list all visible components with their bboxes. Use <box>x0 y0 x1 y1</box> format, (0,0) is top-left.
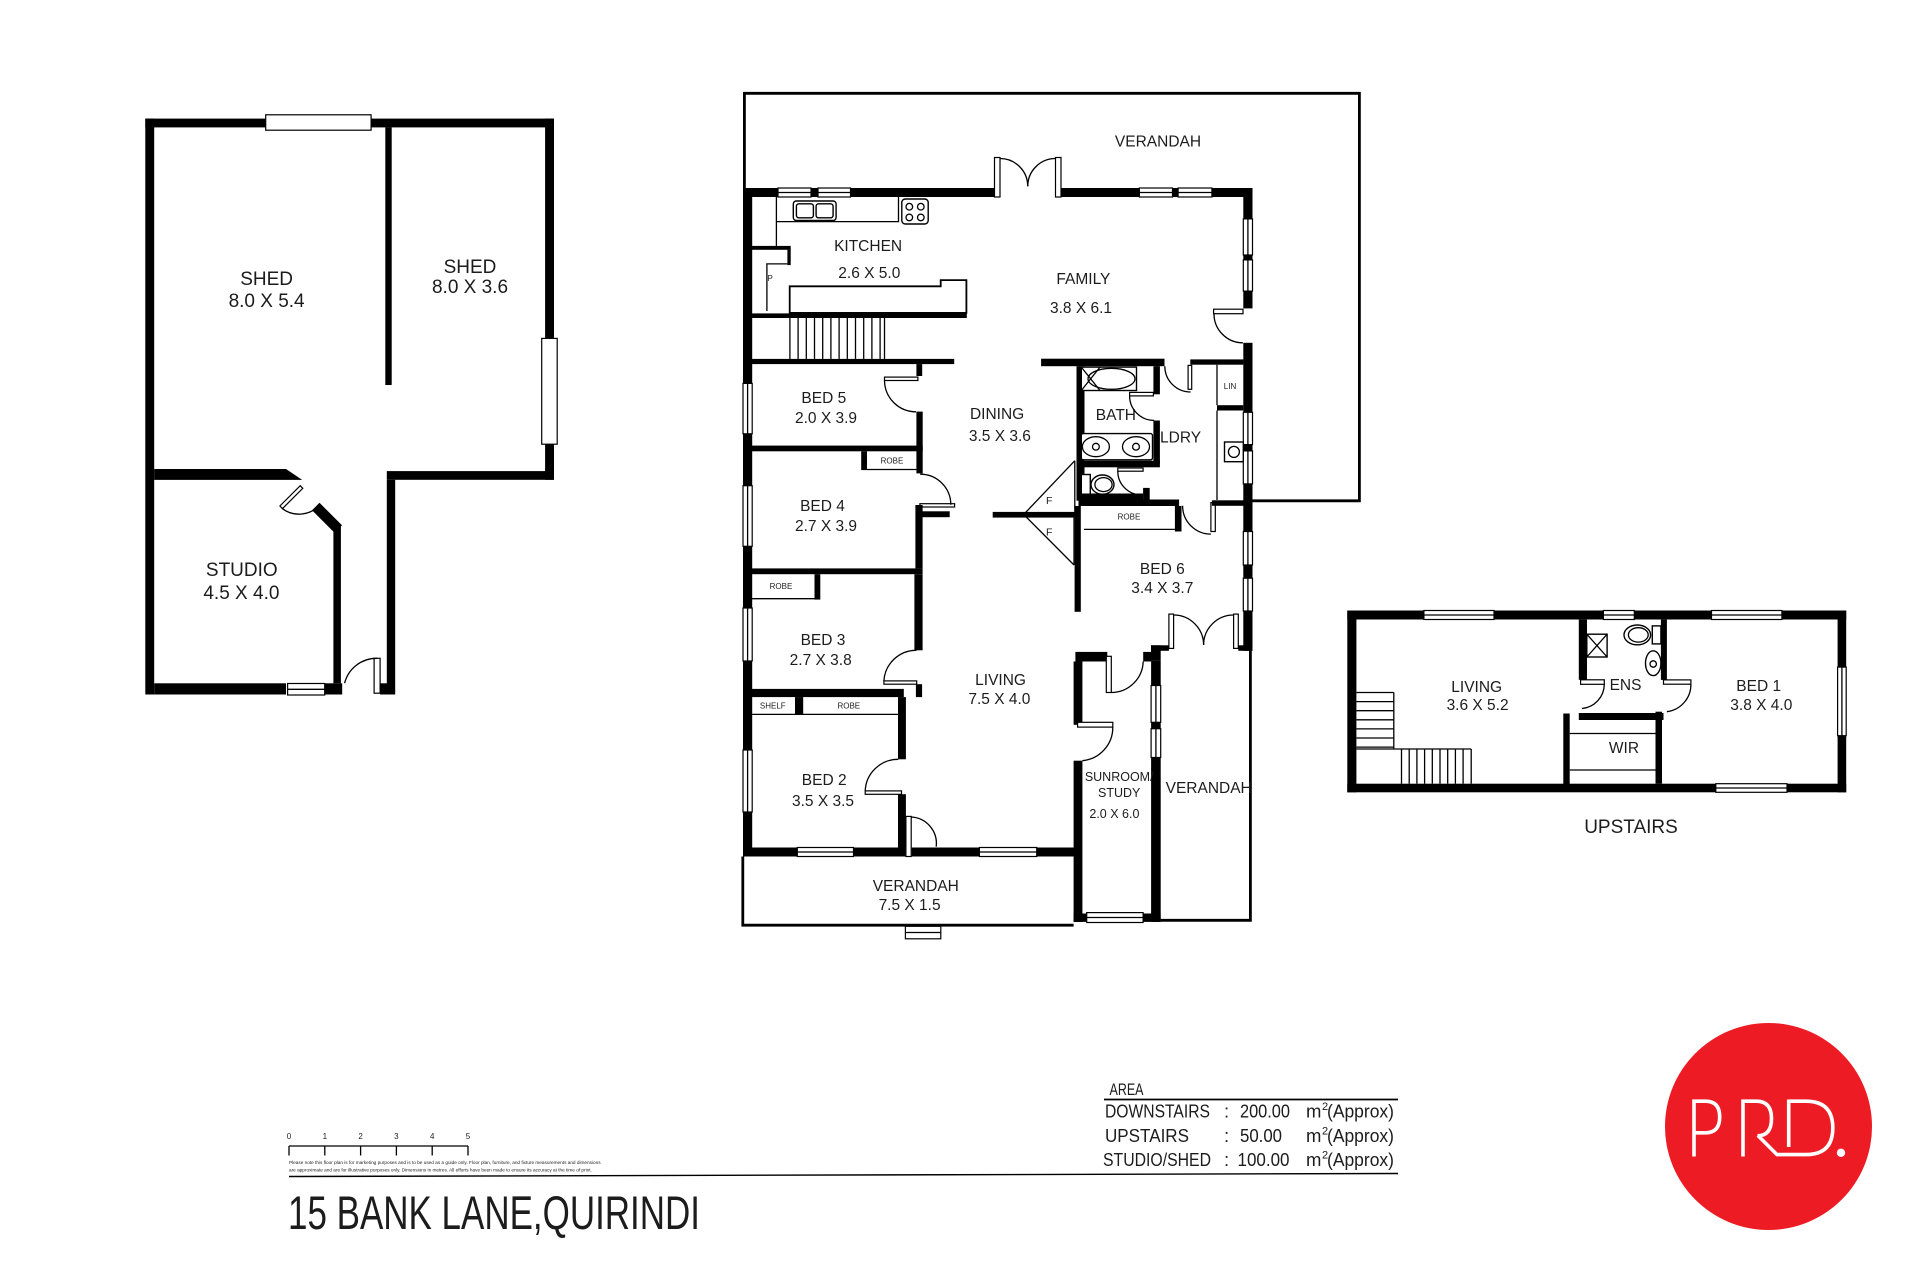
svg-text:4.5 X 4.0: 4.5 X 4.0 <box>203 583 279 604</box>
svg-text:LIVING: LIVING <box>1451 679 1502 696</box>
svg-text:BED 6: BED 6 <box>1140 561 1185 578</box>
svg-text:0: 0 <box>287 1132 292 1141</box>
svg-text:KITCHEN: KITCHEN <box>834 238 902 255</box>
svg-text:3.5 X 3.5: 3.5 X 3.5 <box>792 793 854 810</box>
svg-text:F: F <box>1046 495 1052 507</box>
svg-text:BED 5: BED 5 <box>801 390 846 407</box>
svg-text:BED 3: BED 3 <box>801 632 846 649</box>
svg-text:m: m <box>1306 1101 1321 1122</box>
svg-text:3.8 X 4.0: 3.8 X 4.0 <box>1730 697 1792 714</box>
svg-text:m: m <box>1306 1149 1321 1170</box>
svg-text:100.00: 100.00 <box>1238 1149 1290 1170</box>
svg-text:7.5 X 4.0: 7.5 X 4.0 <box>968 691 1030 708</box>
svg-text:LIVING: LIVING <box>975 672 1026 689</box>
svg-text:are approximate and are for il: are approximate and are for illustrative… <box>289 1168 592 1173</box>
svg-text::: : <box>1224 1149 1229 1170</box>
svg-text:50.00: 50.00 <box>1240 1125 1282 1146</box>
svg-text:2.7 X 3.8: 2.7 X 3.8 <box>790 652 852 669</box>
svg-text:5: 5 <box>466 1132 471 1141</box>
svg-text:SHELF: SHELF <box>760 702 786 711</box>
svg-text:8.0 X 5.4: 8.0 X 5.4 <box>229 291 305 312</box>
svg-text:7.5 X 1.5: 7.5 X 1.5 <box>879 897 941 914</box>
svg-text:m: m <box>1306 1125 1321 1146</box>
svg-text:WIR: WIR <box>1609 740 1639 757</box>
svg-text:VERANDAH: VERANDAH <box>1166 780 1252 797</box>
svg-text:ENS: ENS <box>1610 677 1642 694</box>
svg-text:Please note this floor plan is: Please note this floor plan is for marke… <box>289 1160 601 1165</box>
svg-text:SHED: SHED <box>240 269 293 290</box>
svg-text:SHED: SHED <box>444 257 497 278</box>
svg-text:STUDY: STUDY <box>1098 786 1141 800</box>
svg-text:2: 2 <box>358 1132 363 1141</box>
svg-text:(Approx): (Approx) <box>1327 1149 1394 1170</box>
svg-text:200.00: 200.00 <box>1240 1101 1290 1122</box>
svg-text:F: F <box>1046 527 1052 539</box>
svg-text:LIN: LIN <box>1224 382 1237 391</box>
svg-text:2.7 X 3.9: 2.7 X 3.9 <box>795 518 857 535</box>
svg-text:3: 3 <box>394 1132 399 1141</box>
svg-text:DINING: DINING <box>970 406 1024 423</box>
svg-text:(Approx): (Approx) <box>1327 1125 1394 1146</box>
svg-text:1: 1 <box>323 1132 328 1141</box>
svg-text:8.0 X 3.6: 8.0 X 3.6 <box>432 277 508 298</box>
svg-text:2.0 X 6.0: 2.0 X 6.0 <box>1089 807 1139 821</box>
svg-text:BED 1: BED 1 <box>1736 678 1781 695</box>
svg-text:ROBE: ROBE <box>881 457 904 466</box>
svg-text::: : <box>1224 1125 1229 1146</box>
svg-text:3.5 X 3.6: 3.5 X 3.6 <box>969 428 1031 445</box>
svg-text:BED 2: BED 2 <box>802 772 847 789</box>
svg-text::: : <box>1224 1101 1229 1122</box>
svg-text:3.4 X 3.7: 3.4 X 3.7 <box>1131 580 1193 597</box>
svg-text:DOWNSTAIRS: DOWNSTAIRS <box>1105 1101 1210 1122</box>
svg-text:UPSTAIRS: UPSTAIRS <box>1584 817 1678 838</box>
svg-text:VERANDAH: VERANDAH <box>873 878 959 895</box>
svg-text:3.8 X 6.1: 3.8 X 6.1 <box>1050 300 1112 317</box>
svg-text:2.6 X 5.0: 2.6 X 5.0 <box>838 265 900 282</box>
svg-text:ROBE: ROBE <box>770 582 793 591</box>
svg-text:P: P <box>768 274 773 283</box>
svg-text:VERANDAH: VERANDAH <box>1115 134 1201 151</box>
svg-text:ROBE: ROBE <box>837 702 860 711</box>
svg-text:LDRY: LDRY <box>1160 430 1201 447</box>
svg-text:SUNROOM/: SUNROOM/ <box>1085 770 1154 784</box>
svg-text:STUDIO: STUDIO <box>206 560 278 581</box>
svg-text:BED 4: BED 4 <box>800 498 845 515</box>
svg-text:FAMILY: FAMILY <box>1056 271 1110 288</box>
svg-text:(Approx): (Approx) <box>1327 1101 1394 1122</box>
svg-text:2.0 X 3.9: 2.0 X 3.9 <box>795 410 857 427</box>
svg-text:4: 4 <box>430 1132 435 1141</box>
svg-text:BATH: BATH <box>1096 407 1136 424</box>
svg-text:15 BANK LANE,QUIRINDI: 15 BANK LANE,QUIRINDI <box>288 1186 700 1239</box>
svg-text:STUDIO/SHED: STUDIO/SHED <box>1103 1149 1211 1170</box>
svg-text:3.6 X 5.2: 3.6 X 5.2 <box>1447 697 1509 714</box>
svg-text:UPSTAIRS: UPSTAIRS <box>1105 1125 1189 1146</box>
svg-text:AREA: AREA <box>1110 1080 1144 1099</box>
svg-text:ROBE: ROBE <box>1118 513 1141 522</box>
